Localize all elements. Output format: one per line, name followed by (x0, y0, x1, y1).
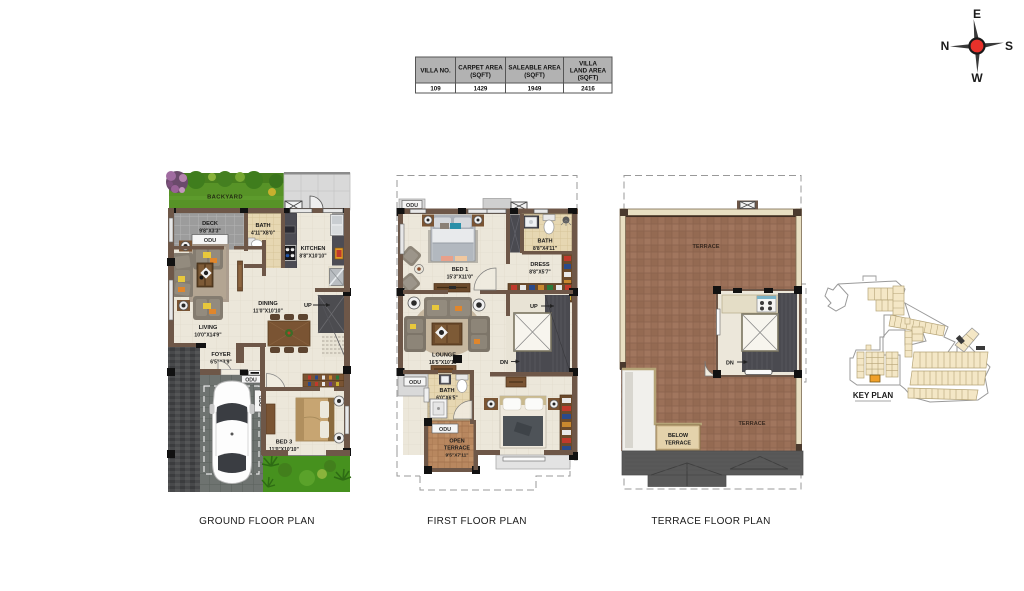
svg-text:BED 3: BED 3 (276, 440, 292, 446)
svg-text:VILLA: VILLA (579, 61, 597, 68)
svg-text:4'11"X8'0": 4'11"X8'0" (251, 231, 276, 237)
svg-text:9'8"X3'3": 9'8"X3'3" (199, 229, 221, 235)
svg-text:KEY PLAN: KEY PLAN (853, 391, 894, 400)
svg-text:GROUND FLOOR PLAN: GROUND FLOOR PLAN (199, 516, 315, 527)
svg-text:(SQFT): (SQFT) (470, 72, 491, 79)
svg-text:TERRACE: TERRACE (692, 244, 719, 250)
svg-text:BATH: BATH (439, 388, 454, 394)
svg-text:BED 1: BED 1 (452, 267, 468, 273)
svg-text:W: W (971, 71, 983, 85)
svg-text:DECK: DECK (202, 221, 218, 227)
svg-text:BATH: BATH (537, 239, 552, 245)
svg-text:TERRACE FLOOR PLAN: TERRACE FLOOR PLAN (651, 516, 770, 527)
svg-text:ODU: ODU (409, 380, 421, 386)
svg-text:1949: 1949 (528, 86, 542, 93)
svg-text:ODU: ODU (406, 203, 418, 209)
svg-text:CARPET AREA: CARPET AREA (458, 65, 503, 72)
svg-text:TERRACE: TERRACE (738, 421, 765, 427)
svg-text:109: 109 (430, 86, 441, 93)
svg-text:10'0"X14'9": 10'0"X14'9" (194, 333, 222, 339)
svg-text:SALEABLE AREA: SALEABLE AREA (508, 65, 561, 72)
svg-text:9'5"X7'11": 9'5"X7'11" (445, 453, 468, 459)
svg-text:S: S (1005, 39, 1013, 53)
svg-text:ODU: ODU (204, 238, 216, 244)
svg-text:15'3"X11'0": 15'3"X11'0" (447, 275, 474, 281)
svg-text:ODU: ODU (439, 427, 451, 433)
svg-text:ODU: ODU (245, 378, 257, 384)
svg-text:DN: DN (500, 360, 508, 366)
svg-text:TERRACE: TERRACE (665, 441, 691, 447)
svg-text:LAND AREA: LAND AREA (570, 68, 607, 75)
svg-text:1429: 1429 (474, 86, 488, 93)
svg-text:LIVING: LIVING (199, 325, 218, 331)
svg-text:11'0"X10'10": 11'0"X10'10" (253, 309, 283, 315)
svg-text:8'8"X10'10": 8'8"X10'10" (299, 254, 327, 260)
svg-text:DINING: DINING (258, 301, 278, 307)
svg-text:N: N (941, 39, 950, 53)
svg-text:VILLA NO.: VILLA NO. (420, 68, 451, 75)
svg-text:FIRST FLOOR PLAN: FIRST FLOOR PLAN (427, 516, 527, 527)
svg-text:FOYER: FOYER (211, 352, 230, 358)
svg-text:E: E (973, 7, 981, 21)
svg-text:TERRACE: TERRACE (444, 446, 470, 452)
svg-text:OPEN: OPEN (449, 439, 464, 445)
svg-text:DRESS: DRESS (530, 262, 550, 268)
svg-text:8'8"X5'7": 8'8"X5'7" (529, 270, 551, 276)
svg-text:BACKYARD: BACKYARD (207, 195, 243, 201)
svg-text:2416: 2416 (581, 86, 595, 93)
svg-text:BELOW: BELOW (668, 433, 689, 439)
svg-text:UP: UP (304, 303, 312, 309)
svg-text:BATH: BATH (255, 223, 270, 229)
svg-text:(SQFT): (SQFT) (578, 75, 599, 82)
svg-text:LOUNGE: LOUNGE (432, 353, 456, 359)
svg-text:DN: DN (726, 361, 734, 367)
svg-text:(SQFT): (SQFT) (524, 72, 545, 79)
svg-text:KITCHEN: KITCHEN (301, 246, 326, 252)
svg-text:UP: UP (530, 304, 538, 310)
